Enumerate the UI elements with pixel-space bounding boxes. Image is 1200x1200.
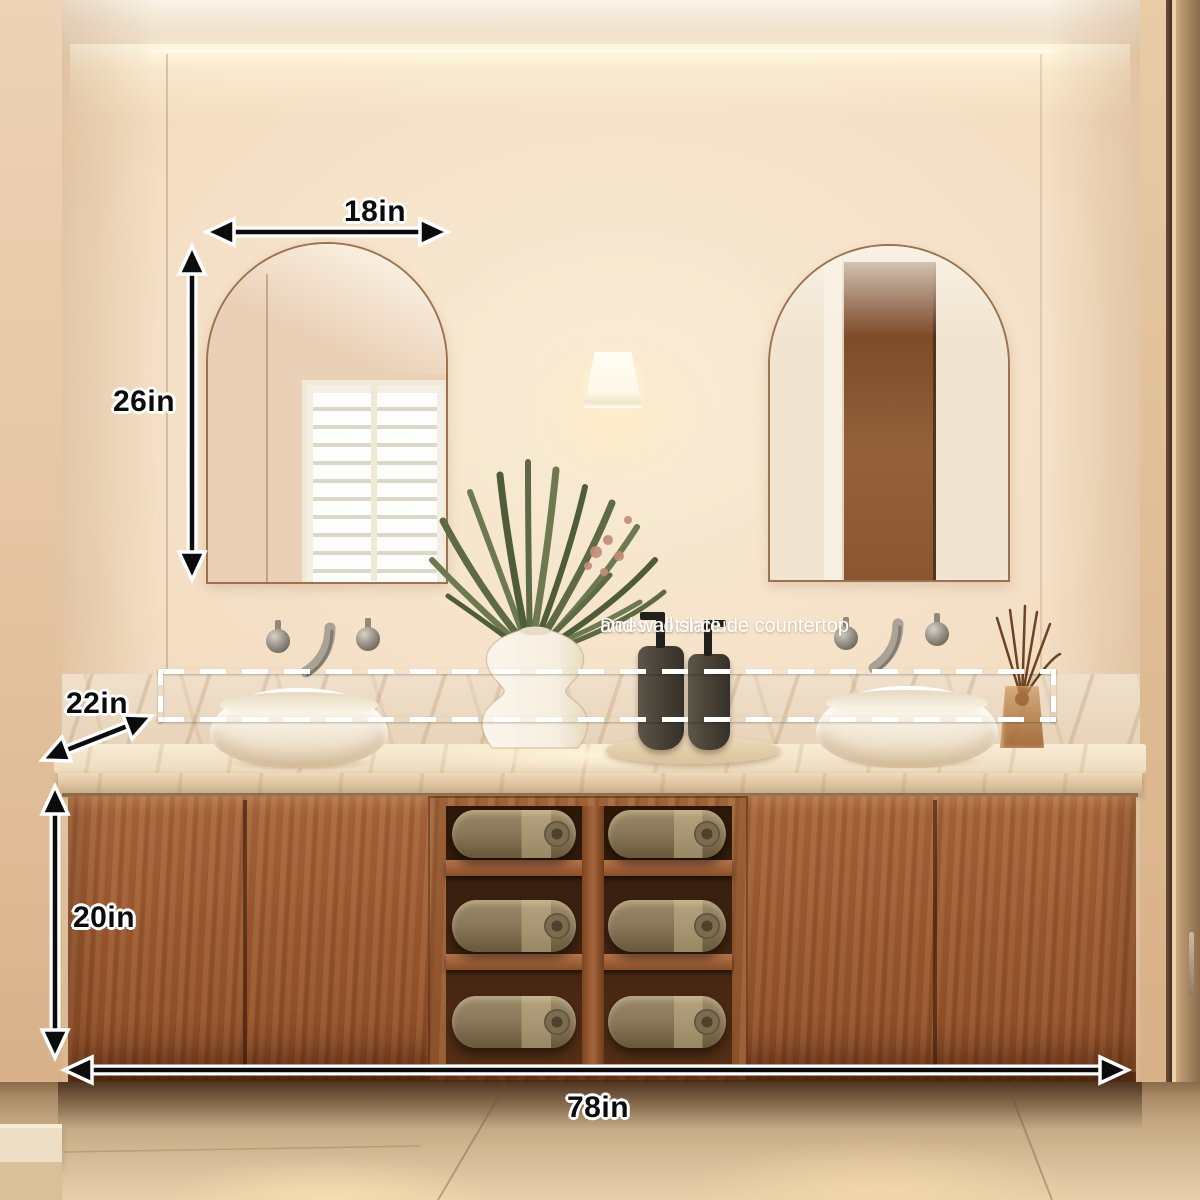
left-wall <box>0 0 62 1200</box>
shelf-center-divider <box>582 806 604 1064</box>
cabinet-bottom-edge <box>68 1072 1136 1082</box>
rolled-towel <box>608 810 726 858</box>
rolled-towel <box>452 900 576 952</box>
wood-door-panel <box>1172 0 1200 1200</box>
rolled-towel <box>608 900 726 952</box>
mirror-height-label: 26in <box>113 385 175 419</box>
marble-countertop-edge <box>58 773 1142 794</box>
right-arched-mirror <box>768 244 1010 582</box>
counter-depth-label: 22in <box>66 687 128 721</box>
cove-light-glow <box>70 44 1130 118</box>
cabinet-door-gap-left <box>243 800 247 1076</box>
floor-corner <box>0 1162 62 1200</box>
mirror-width-label: 18in <box>344 195 406 229</box>
rolled-towel <box>608 996 726 1048</box>
disclaimer-line2: and wall slate <box>600 612 721 640</box>
vanity-width-label: 78in <box>567 1091 629 1125</box>
mirror-reflection-ceiling <box>208 244 446 374</box>
door-handle <box>1189 932 1194 996</box>
mirror-reflection-ceiling <box>770 246 1008 336</box>
cove-light-strip <box>150 49 1060 53</box>
cabinet-door-gap-right <box>933 800 937 1076</box>
left-vessel-sink <box>210 688 388 768</box>
dashed-box-bottom <box>158 717 1056 722</box>
right-wall <box>1140 0 1168 1200</box>
soap-dispenser <box>638 646 684 750</box>
alcove-corner-left <box>166 54 168 694</box>
mirror-reflection-corner <box>266 274 268 584</box>
alcove-corner-right <box>1040 54 1042 674</box>
cabinet-height-label: 20in <box>73 901 135 935</box>
window-mullion <box>371 385 377 581</box>
right-vessel-sink <box>816 686 998 768</box>
rolled-towel <box>452 810 576 858</box>
dashed-box-right <box>1051 669 1056 722</box>
rolled-towel <box>452 996 576 1048</box>
dashed-box-top <box>158 669 1056 674</box>
bathroom-vanity-product-photo: Does not include countertop and wall sla… <box>0 0 1200 1200</box>
mirror-reflection-window <box>302 380 448 584</box>
left-arched-mirror <box>206 242 448 584</box>
baseboard <box>0 1124 62 1166</box>
dashed-box-left <box>158 669 163 722</box>
door-edge-highlight <box>1172 0 1176 1200</box>
